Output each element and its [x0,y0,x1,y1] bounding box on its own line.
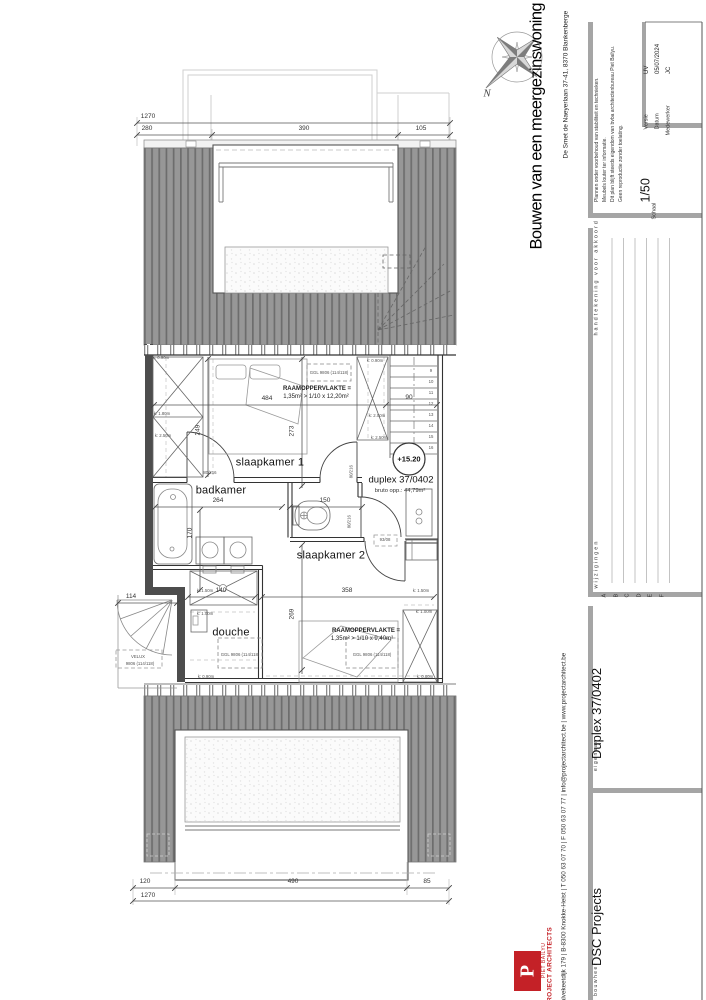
height-label: k: 0.90m [153,356,169,360]
door-size-label: 80/216 [350,465,354,478]
stair-number: 11 [429,391,433,395]
door-size-label: 80/216 [203,471,216,475]
dim: 90 [405,395,412,402]
height-label: k: 1.00m [197,612,213,616]
floor-plan-linework [0,0,706,1000]
note-line: Meubels louter ter informatie. [603,137,608,202]
stair-number: 9 [430,369,432,373]
dim: 140 [216,588,227,595]
dim-total-top: 1270 [141,114,155,121]
dim: 105 [416,126,427,133]
dim: 280 [142,126,153,133]
medewerker-label: Medewerker [667,105,673,135]
roof-window-label: GGL 9806 (114/118) [221,653,260,657]
dim-vertical: 273 [290,426,297,437]
unit-name: Duplex 37/0402 [590,668,603,759]
height-label: k: 1.50m [197,589,213,593]
revision-row-label: F [661,594,667,597]
stair-number: 12 [429,402,434,406]
revision-sign-header: handtekening voor akkoord [595,219,601,335]
dim: 150 [320,498,331,505]
dim: 85 [423,879,430,886]
revision-row-label: C [626,594,632,598]
dim-vertical: 269 [290,609,297,620]
height-label: k: 1.00m [416,610,432,614]
stair-number: 13 [429,413,434,417]
height-label: k: 1.50m [413,589,429,593]
firm-logo-letter: P [516,965,539,977]
drawing-sheet: Bouwen van een meergezinswoning De Smet … [0,0,706,1000]
room-label-douche: douche [212,628,249,639]
door-size-label: 80/216 [348,515,352,528]
bouwheer-label: bouwheer [594,962,599,996]
project-address: De Smet de Naeyerlaan 37-41, 8370 Blanke… [564,11,571,159]
velux-label-2: 9806 (114/118) [126,662,155,666]
revision-changes-header: wijzigingen [595,540,601,589]
dim: 390 [299,126,310,133]
note-line: Geen reproductie zonder toelating. [619,125,624,202]
dim: 484 [262,396,273,403]
firm-logo: P [514,951,541,991]
window-note-2: RAAMOPPERVLAKTE = [332,628,400,634]
level-marker: +15.20 [397,455,420,463]
note-line: Plannen onder voorbehoud van stabiliteit… [595,77,600,202]
revision-row-label: E [649,594,655,598]
datum-label: Datum [656,113,662,129]
dim: 264 [213,498,224,505]
dim-total-bottom: 1270 [141,893,155,900]
height-label: k: 0.80m [417,675,433,679]
height-label: k: 0.90m [367,359,383,363]
room-label-badkamer: badkamer [196,486,247,497]
revision-row-label: D [638,594,644,598]
revision-row-label: B [615,594,621,598]
firm-contact: Kalvekeetdijk 179 | B-8300 Knokke-Heist … [562,653,568,1000]
datum-value: 05/07/2024 [655,44,661,74]
firm-name-2: PROJECT ARCHITECTS [548,927,555,1000]
room-label-slaapkamer1: slaapkamer 1 [236,458,304,469]
schaal-label: Schaal [653,203,659,220]
height-label: k: 2.50m [371,436,387,440]
note-line: Dit plan blijft steeds eigendom van bvba… [611,46,616,202]
height-label: k: 2.00m [369,414,385,418]
window-note-1: RAAMOPPERVLAKTE = [283,386,351,392]
room-label-slaapkamer2: slaapkamer 2 [297,551,365,562]
versie-value: UV [644,66,650,74]
roof-window-label: GGL 9806 (114/118) [353,653,392,657]
window-note-2b: 1,35m² > 1/10 x 9,40m² [331,636,393,642]
client-name: DSC Projects [590,888,603,966]
dim: 490 [288,879,299,886]
revision-row-label: A [603,594,609,598]
dim: 358 [342,588,353,595]
velux-label: VELUX [131,655,145,659]
height-label: k: 0.90m [198,675,214,679]
dim-vertical: 249 [196,425,203,436]
project-title: Bouwen van een meergezinswoning [529,3,546,250]
window-note-1b: 1,35m² > 1/10 x 12,20m² [283,394,349,400]
stair-number: 15 [429,435,434,439]
versie-label: Versie [645,114,651,129]
stair-number: 10 [429,380,434,384]
lintel-label: 93/08 [380,538,391,542]
height-label: k: 1.80m [154,412,170,416]
dim-vertical: 170 [188,528,195,539]
dim: 120 [140,879,151,886]
unit-title: duplex 37/0402 [369,475,434,485]
stair-number: 14 [429,424,434,428]
north-label: N [483,89,490,100]
medewerker-value: JC [666,67,672,74]
height-label: k: 2.50m [155,434,171,438]
roof-window-label: GGL 9806 (114/118) [310,371,349,375]
unit-area: bruto opp.: 44,79m² [375,489,426,495]
stair-number: 16 [429,446,434,450]
schaal-value: 1/50 [640,178,653,202]
dim: 114 [126,594,136,601]
